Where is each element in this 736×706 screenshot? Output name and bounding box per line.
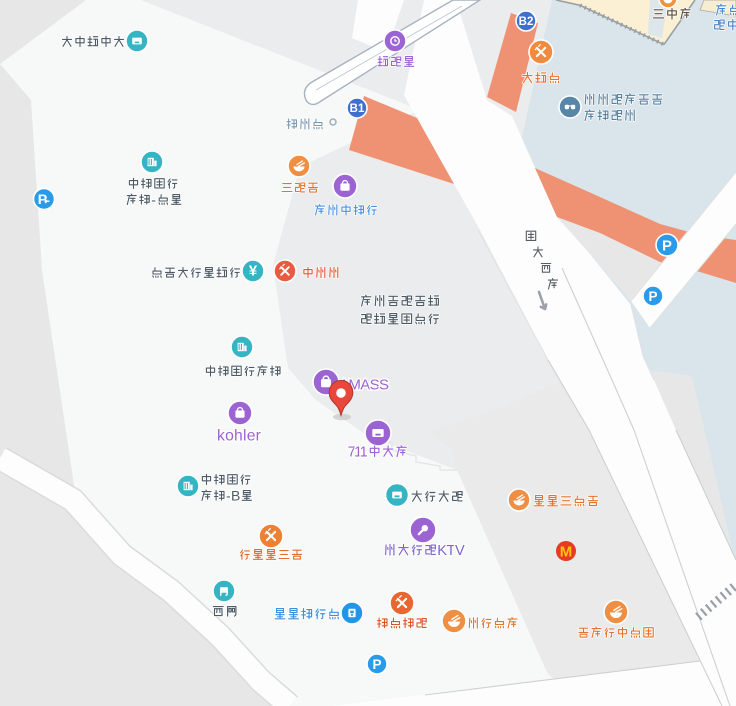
svg-text:-B: -B [226, 488, 240, 504]
svg-text:kohler: kohler [217, 428, 261, 445]
svg-text:B1: B1 [350, 103, 365, 115]
svg-text:P: P [662, 238, 672, 254]
svg-text:P: P [372, 657, 381, 672]
svg-text:B2: B2 [519, 16, 534, 28]
svg-text:-: - [151, 192, 156, 208]
svg-text:KTV: KTV [437, 543, 465, 559]
svg-text:M: M [560, 544, 573, 561]
svg-text:¥: ¥ [249, 264, 258, 280]
svg-text:711: 711 [348, 445, 368, 461]
svg-text:P: P [648, 289, 657, 304]
